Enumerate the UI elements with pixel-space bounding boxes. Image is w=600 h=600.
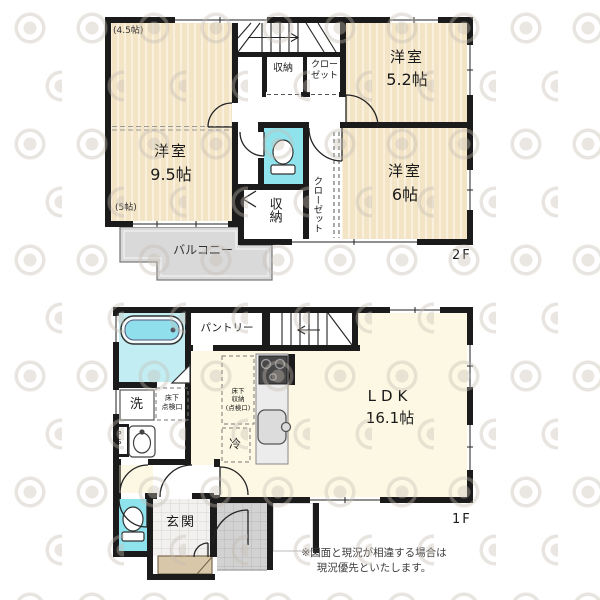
room95-upper-size: (4.5帖) (113, 26, 143, 37)
room6-size: 6帖 (372, 185, 438, 204)
door-room6 (309, 128, 342, 161)
ldk-size: 16.1帖 (348, 409, 432, 427)
hatch-line1: 床下 (156, 394, 188, 403)
floor-plan-graphic (0, 0, 600, 600)
floor-plan-canvas: (4.5帖) 洋室 9.5帖 (5帖) 収納 クローゼット 洋室 5.2帖 洋室… (0, 0, 600, 600)
pantry-label: パントリー (196, 322, 258, 335)
closet-side-label: クローゼット (311, 176, 322, 238)
storage-fold-icon (243, 191, 256, 207)
room6-name: 洋室 (372, 162, 438, 180)
disclaimer-line2: 現況優先といたします。 (288, 561, 460, 576)
closet-upper-label: クローゼット (307, 60, 342, 83)
room95-size: 9.5帖 (138, 165, 204, 184)
fridge-label: 冷 (229, 437, 241, 451)
entrance-step (158, 556, 212, 574)
bathtub-icon (121, 316, 183, 344)
underfloor-hatch-label: 床下点検口 (156, 394, 188, 412)
hall-floor (153, 465, 214, 497)
closet-upper-line2: ゼット (307, 71, 342, 82)
washer-label: 洗 (130, 397, 143, 413)
room52-size: 5.2帖 (374, 70, 440, 89)
balcony-label: バルコニー (165, 243, 241, 257)
disclaimer-line1: ※図面と現況が相違する場合は (288, 546, 460, 561)
underfloor-storage-label: 床下収納(点検口) (222, 387, 254, 412)
room-9-5-floor (111, 23, 232, 221)
staircase-2f-icon (238, 23, 336, 52)
entrance-label: 玄関 (166, 515, 196, 531)
room-6-floor (342, 128, 467, 239)
room95-lower-size: (5帖) (115, 203, 137, 214)
first-floor-plan (113, 307, 473, 580)
stove-icon (259, 356, 287, 384)
floor-storage-line3: (点検口) (222, 404, 254, 412)
kitchen-island (256, 354, 291, 464)
closet-upper-line1: クロー (307, 60, 342, 71)
porch-floor (217, 503, 267, 570)
hatch-line2: 点検口 (156, 403, 188, 412)
toilet-icon-2f (271, 140, 295, 174)
washbasin-icon (129, 426, 155, 457)
floor1-label: 1F (452, 512, 472, 528)
room95-name: 洋室 (138, 142, 204, 160)
storage-lower-label: 収納 (266, 197, 282, 241)
pipe-space-label: PS (115, 430, 123, 454)
porch-side-area (273, 503, 313, 551)
kitchen-sink-icon (258, 410, 291, 444)
room52-name: 洋室 (374, 48, 440, 66)
floor-storage-line2: 収納 (222, 395, 254, 403)
disclaimer: ※図面と現況が相違する場合は 現況優先といたします。 (288, 546, 460, 576)
ldk-name: LDK (348, 387, 432, 405)
room-fills-1f (119, 313, 468, 574)
floor2-label: 2F (452, 248, 472, 264)
storage-upper-label: 収納 (264, 63, 302, 75)
